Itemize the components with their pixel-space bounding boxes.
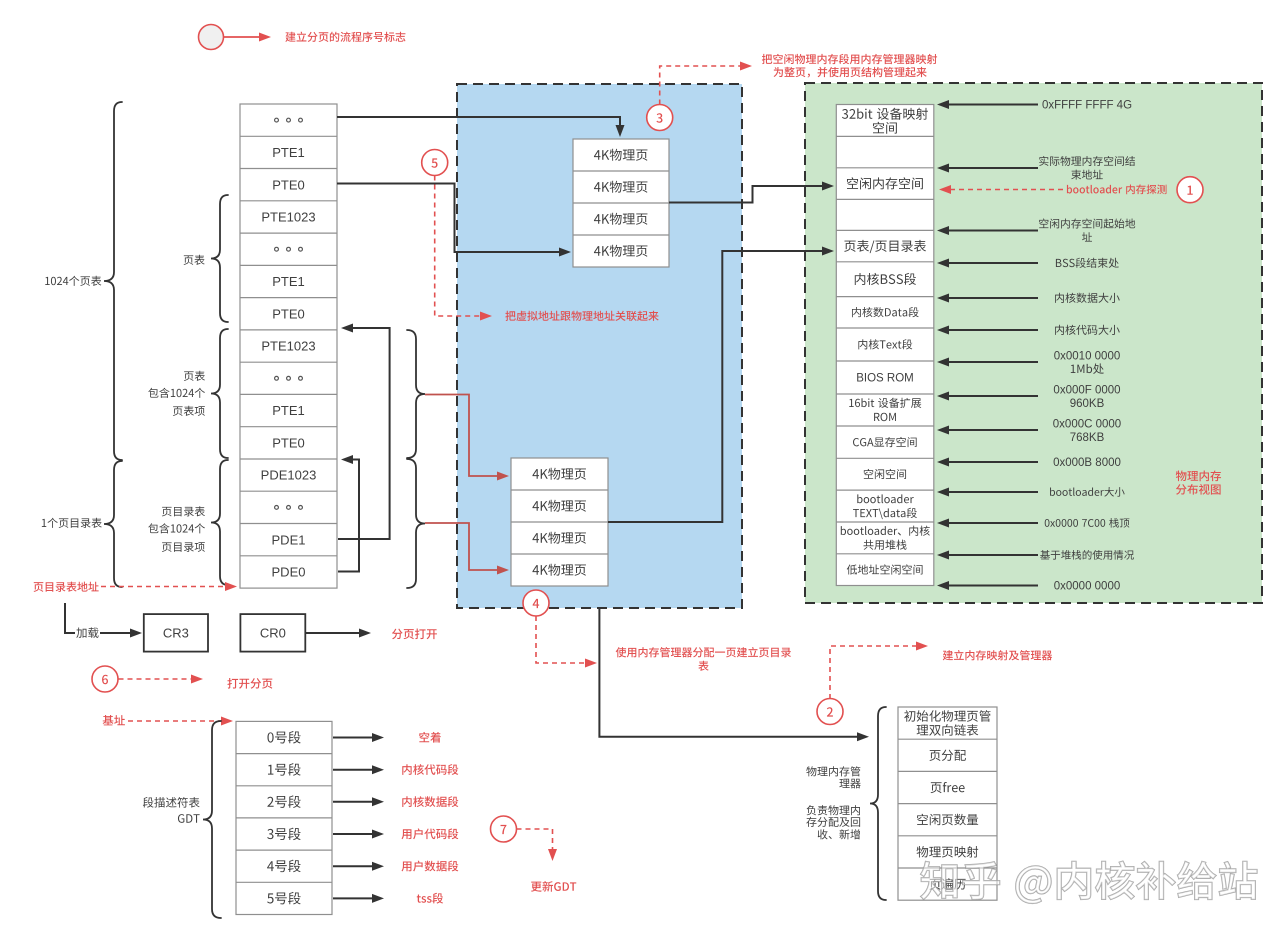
svg-text:PTE1: PTE1 <box>272 403 305 418</box>
svg-text:PDE1023: PDE1023 <box>261 468 317 483</box>
svg-text:0x000C 0000: 0x000C 0000 <box>1053 418 1121 430</box>
svg-text:PTE0: PTE0 <box>272 436 305 451</box>
svg-text:BIOS ROM: BIOS ROM <box>856 373 914 385</box>
svg-text:PDE1: PDE1 <box>272 532 306 547</box>
svg-text:960KB: 960KB <box>1070 398 1105 410</box>
svg-text:PTE1023: PTE1023 <box>261 339 315 354</box>
svg-text:PTE1: PTE1 <box>272 274 305 289</box>
svg-text:0xFFFF FFFF 4G: 0xFFFF FFFF 4G <box>1042 100 1132 112</box>
svg-text:PDE0: PDE0 <box>272 565 306 580</box>
svg-text:PTE1: PTE1 <box>272 145 305 160</box>
svg-text:0x0010 0000: 0x0010 0000 <box>1054 350 1121 362</box>
svg-text:0x000F 0000: 0x000F 0000 <box>1053 384 1120 396</box>
svg-text:PTE1023: PTE1023 <box>261 210 315 225</box>
svg-text:0x000B 8000: 0x000B 8000 <box>1053 457 1121 469</box>
svg-text:CR0: CR0 <box>260 626 286 641</box>
svg-text:0x0000 0000: 0x0000 0000 <box>1054 581 1121 593</box>
svg-text:CR3: CR3 <box>163 626 189 641</box>
svg-text:768KB: 768KB <box>1070 432 1105 444</box>
svg-text:PTE0: PTE0 <box>272 177 305 192</box>
svg-text:PTE0: PTE0 <box>272 306 305 321</box>
